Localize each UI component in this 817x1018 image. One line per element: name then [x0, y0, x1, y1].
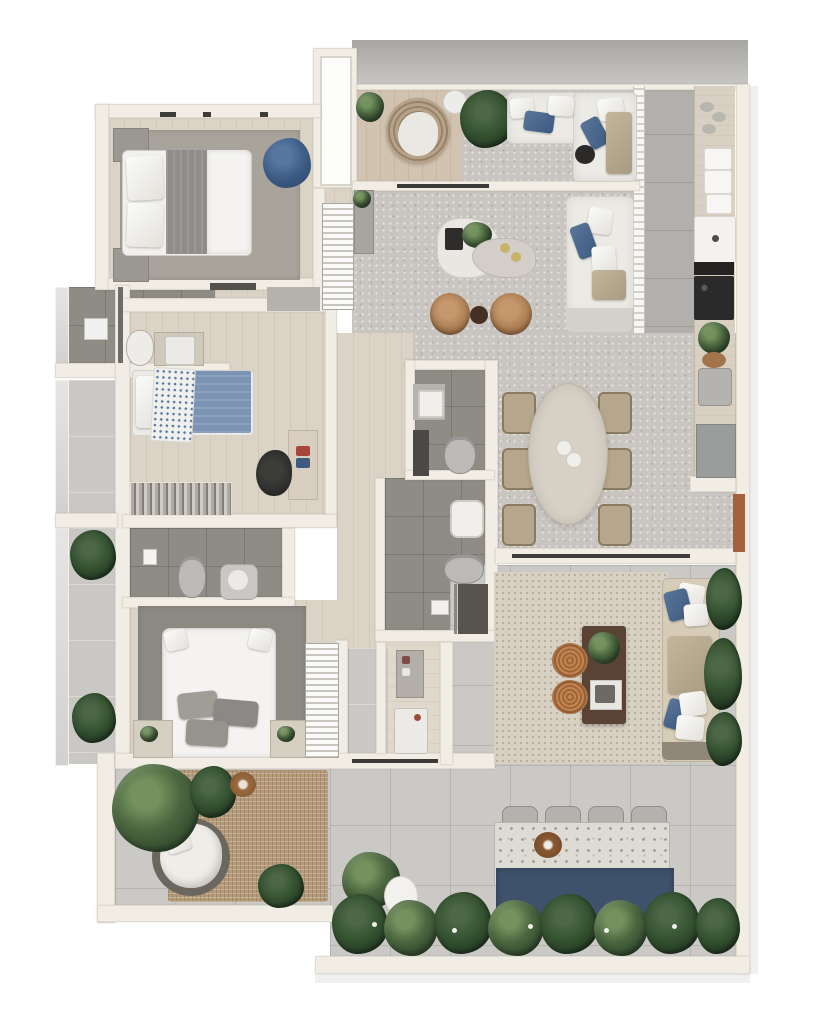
wall-kitchen-south [690, 476, 736, 492]
shower-tray [84, 318, 108, 340]
caramel-armchair-1 [430, 293, 470, 335]
side-balcony-plant-upper [70, 530, 116, 580]
kitchen-dish-1 [700, 102, 714, 112]
balcony-black-table [575, 145, 595, 164]
caramel-armchair-2 [490, 293, 532, 335]
terrace-left-palm [190, 766, 236, 818]
bath2-toilet [444, 436, 476, 474]
living-throw-tan [592, 270, 626, 300]
terrace-left-dark-bush [258, 864, 304, 908]
bath3-shower-glass [454, 584, 457, 634]
terrace-pouf-2 [552, 680, 588, 714]
wall-nook-left [376, 642, 386, 754]
outdoor-pillow-w4 [675, 715, 705, 742]
master-duvet [207, 150, 251, 254]
sideboard-plant [353, 190, 371, 208]
kitchen-dish-2 [712, 112, 726, 122]
top-parapet-sill [352, 84, 748, 90]
climbing-plant-1 [706, 568, 742, 630]
master-pillow-1 [126, 155, 164, 201]
floor-plan-canvas [0, 0, 817, 1018]
foyer-doormat [267, 287, 320, 311]
hedge-bush-8 [696, 898, 740, 954]
master-bathroom-window [55, 287, 69, 367]
climbing-plant-2 [704, 638, 742, 710]
master-door-threshold [210, 283, 256, 290]
master-window-tick-3 [260, 112, 268, 117]
kitchen-plant [698, 322, 730, 354]
hedge-bush-4 [488, 900, 544, 956]
kitchen-sink-gray [698, 368, 732, 406]
terrace-left-corner-bush [112, 764, 200, 852]
bed2-patterned-throw [150, 367, 196, 443]
bath2-wall-sink [418, 390, 444, 418]
bed2-desk-item-blue [296, 458, 310, 468]
bed3-gray-pillow-3 [185, 719, 228, 747]
foyer-shoe-shelf [322, 203, 354, 310]
l-sofa-pillow-w2 [547, 95, 574, 117]
palm-plant [460, 90, 514, 148]
master-window-tick-2 [203, 112, 211, 117]
dining-slider-track [512, 554, 690, 558]
hedge-bush-6 [594, 900, 648, 956]
balcony-corner-plant [356, 92, 384, 122]
hedge-flower-5 [672, 924, 677, 929]
top-parapet [352, 40, 748, 86]
master-window-tick-1 [160, 112, 176, 117]
hedge-bush-3 [434, 892, 492, 954]
terracotta-planter [733, 494, 745, 552]
bath4-toilet [178, 556, 206, 598]
kitchen-sink-faucet [712, 235, 719, 242]
kitchen-floor [641, 86, 695, 333]
kitchen-black-strip [694, 262, 734, 275]
bed3-open-wardrobe [305, 643, 339, 758]
bed3-nightstand-plant-right [277, 726, 295, 742]
hedge-bush-1 [332, 894, 388, 954]
bath4-light-switch [143, 549, 157, 565]
wicker-chair-cushion [398, 112, 438, 156]
climbing-plant-3 [706, 712, 742, 766]
bed3-nightstand-plant-left [140, 726, 158, 742]
wall-nook-right [440, 642, 453, 765]
bath4-sink-bowl [228, 570, 248, 590]
kitchen-cooktop [694, 276, 734, 320]
hedge-bush-2 [384, 900, 438, 956]
wall-bath2-top [405, 360, 497, 370]
wall-balcony-living-divider [352, 181, 640, 191]
wall-bath4-right [282, 528, 295, 608]
table-gold-item-1 [500, 243, 510, 253]
bath3-shower-control [431, 600, 449, 615]
bath3-toilet [444, 554, 484, 584]
wall-bed2-bottom [122, 514, 337, 528]
south-slider-track [352, 759, 438, 763]
side-balcony-lower-railing [55, 528, 69, 766]
shadow-right [750, 86, 758, 974]
nook-console-item-2 [402, 668, 410, 676]
hedge-flower-4 [604, 928, 609, 933]
hedge-bush-5 [540, 894, 598, 954]
bed2-desk-item-red [296, 446, 310, 456]
master-toilet [126, 330, 154, 366]
living-sofa-front [566, 308, 632, 332]
balcony-slider-track [397, 184, 489, 188]
hedge-flower-1 [372, 922, 377, 927]
outdoor-pillow-w3 [678, 690, 707, 717]
nook-washing-machine [394, 708, 428, 754]
table-gold-item-2 [511, 252, 521, 262]
side-balcony-plant-lower [72, 693, 116, 743]
bed2-desk-chair [256, 450, 292, 496]
l-sofa-cushion-tan [606, 112, 632, 174]
shadow-bottom [315, 974, 750, 983]
kitchen-basket [702, 352, 726, 368]
master-vanity-sink [164, 335, 196, 366]
terrace-pouf-1 [552, 643, 588, 678]
dining-chair-3 [502, 504, 536, 546]
dining-chair-6 [598, 504, 632, 546]
washer-dot [414, 714, 421, 721]
hedge-bush-7 [644, 892, 700, 954]
master-pillow-2 [126, 202, 164, 247]
wall-terrace-left-outer [97, 753, 115, 923]
nook-console [396, 650, 424, 698]
side-balcony-upper-floor [68, 380, 118, 513]
wall-balcony-divider [55, 513, 118, 528]
side-balcony-upper-railing [55, 380, 69, 515]
bar-wood-bowl [534, 832, 562, 858]
coffee-table-books [445, 228, 463, 250]
master-blue-armchair [263, 138, 311, 188]
bath3-sink [450, 500, 484, 538]
wall-master-left [95, 104, 109, 290]
master-blanket [166, 150, 208, 254]
terrace-tray-items [595, 685, 615, 703]
wall-terrace-left-bottom [97, 905, 333, 922]
kitchen-base-cabinet [696, 424, 736, 478]
kitchen-dish-3 [702, 124, 716, 134]
shower-glass-divider [118, 287, 123, 363]
bath3-shower-floor [458, 584, 488, 634]
nook-console-item-1 [402, 656, 410, 664]
wall-bath3-left [375, 478, 385, 634]
bath2-dark-counter [413, 430, 429, 476]
hedge-flower-3 [528, 924, 533, 929]
wall-bed2-right [325, 298, 337, 518]
dining-centerpiece-2 [566, 452, 582, 468]
wall-exterior-bottom [315, 956, 750, 974]
entry-door [320, 56, 352, 186]
hedge-flower-2 [452, 928, 457, 933]
bed3-corner-pillow-right [247, 628, 273, 652]
kitchen-towel-1 [704, 148, 732, 170]
kitchen-towel-3 [706, 194, 732, 214]
armchair-side-table [470, 306, 488, 324]
terrace-left-side-table [230, 772, 256, 797]
terrace-table-plant [588, 632, 620, 664]
outdoor-pillow-w2 [683, 603, 708, 627]
bed2-clothes-rack [130, 482, 232, 516]
kitchen-towel-2 [704, 170, 732, 194]
